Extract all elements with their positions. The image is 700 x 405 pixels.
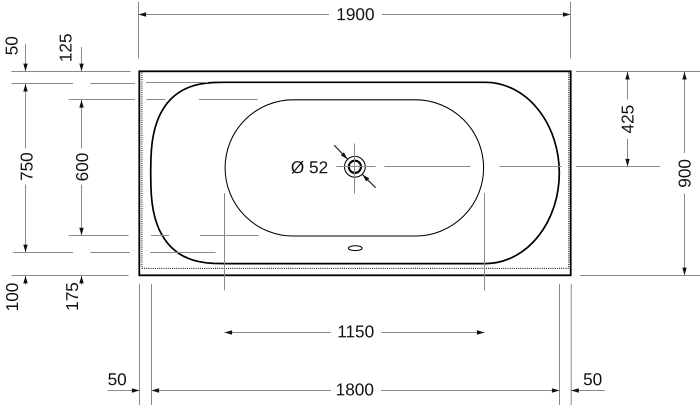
svg-text:Ø 52: Ø 52 bbox=[291, 157, 328, 177]
svg-text:50: 50 bbox=[108, 369, 127, 389]
svg-text:900: 900 bbox=[675, 159, 695, 188]
svg-text:425: 425 bbox=[618, 105, 638, 134]
svg-text:1800: 1800 bbox=[336, 379, 374, 399]
svg-text:1150: 1150 bbox=[337, 321, 374, 341]
svg-text:125: 125 bbox=[56, 33, 76, 62]
svg-text:50: 50 bbox=[2, 36, 22, 55]
svg-text:175: 175 bbox=[62, 282, 82, 311]
svg-text:1900: 1900 bbox=[336, 4, 374, 24]
svg-text:50: 50 bbox=[583, 369, 602, 389]
svg-text:100: 100 bbox=[2, 283, 22, 312]
svg-text:600: 600 bbox=[72, 153, 92, 182]
svg-text:750: 750 bbox=[16, 152, 36, 181]
